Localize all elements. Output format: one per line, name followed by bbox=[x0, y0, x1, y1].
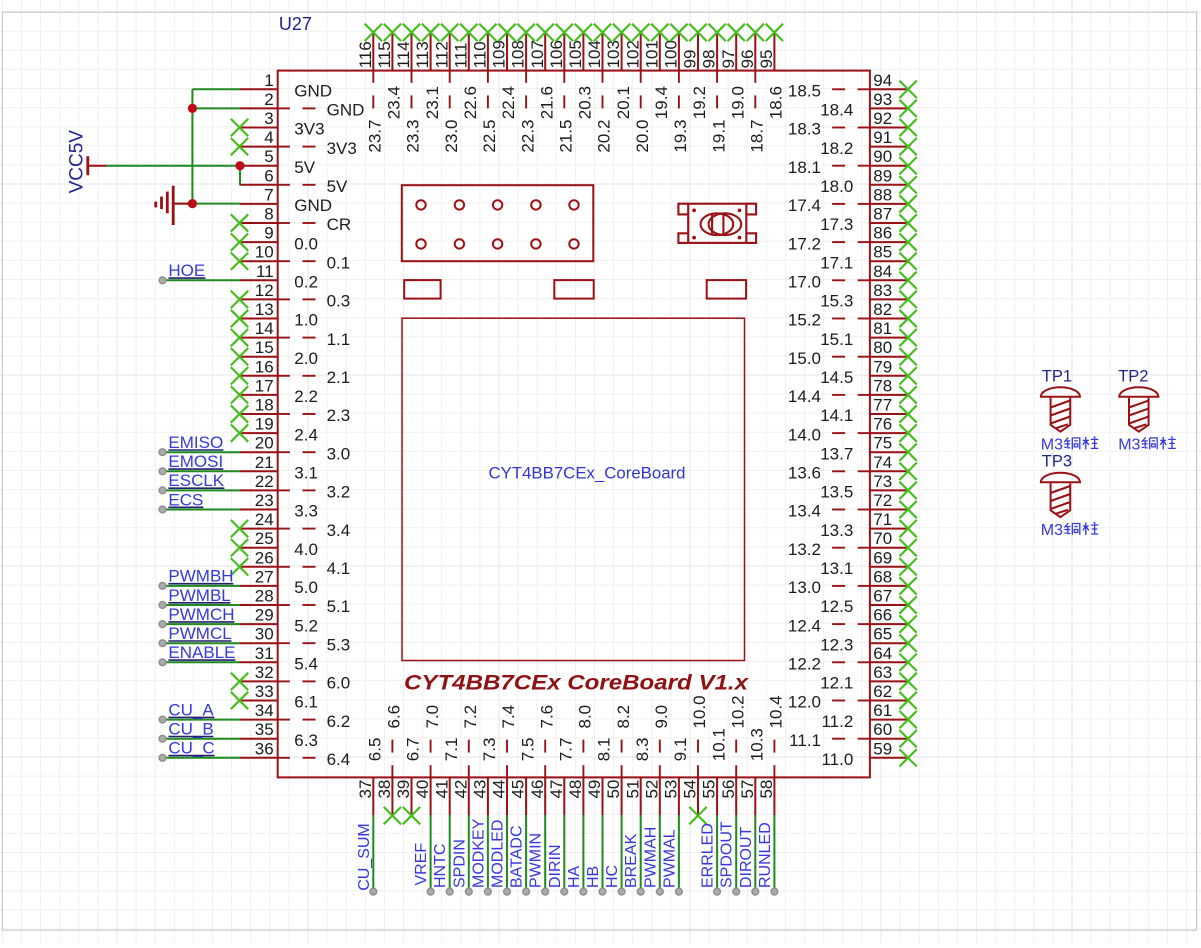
svg-text:MODKEY: MODKEY bbox=[470, 818, 487, 888]
svg-text:20.3: 20.3 bbox=[576, 86, 595, 119]
svg-text:2: 2 bbox=[264, 90, 273, 109]
svg-text:83: 83 bbox=[873, 281, 892, 300]
svg-text:22.4: 22.4 bbox=[499, 86, 518, 119]
svg-text:CU_SUM: CU_SUM bbox=[356, 823, 373, 891]
svg-text:13.4: 13.4 bbox=[788, 502, 821, 521]
svg-text:7.7: 7.7 bbox=[557, 738, 576, 762]
svg-text:43: 43 bbox=[471, 780, 490, 799]
svg-text:37: 37 bbox=[356, 780, 375, 799]
svg-text:13.0: 13.0 bbox=[788, 578, 821, 597]
svg-text:3V3: 3V3 bbox=[294, 120, 324, 139]
svg-text:89: 89 bbox=[873, 166, 892, 185]
svg-text:81: 81 bbox=[873, 319, 892, 338]
svg-text:48: 48 bbox=[566, 780, 585, 799]
svg-text:53: 53 bbox=[662, 780, 681, 799]
svg-text:17.1: 17.1 bbox=[820, 253, 853, 272]
svg-text:34: 34 bbox=[255, 701, 274, 720]
svg-text:23.1: 23.1 bbox=[423, 86, 442, 119]
svg-text:17.2: 17.2 bbox=[788, 234, 821, 253]
svg-text:18.0: 18.0 bbox=[820, 177, 853, 196]
svg-text:33: 33 bbox=[255, 682, 274, 701]
svg-text:72: 72 bbox=[873, 491, 892, 510]
svg-text:17: 17 bbox=[255, 376, 274, 395]
svg-text:61: 61 bbox=[873, 701, 892, 720]
svg-text:EMISO: EMISO bbox=[168, 433, 223, 452]
svg-text:ERRLED: ERRLED bbox=[700, 823, 717, 888]
svg-text:11.0: 11.0 bbox=[821, 750, 853, 769]
svg-text:13.6: 13.6 bbox=[788, 464, 821, 483]
svg-text:VCC5V: VCC5V bbox=[67, 130, 88, 194]
svg-text:9.1: 9.1 bbox=[671, 738, 690, 762]
svg-text:PWMCL: PWMCL bbox=[168, 624, 231, 643]
svg-text:76: 76 bbox=[873, 415, 892, 434]
svg-text:55: 55 bbox=[700, 780, 719, 799]
svg-text:95: 95 bbox=[757, 49, 776, 68]
svg-text:107: 107 bbox=[528, 40, 547, 68]
svg-text:CU_C: CU_C bbox=[168, 739, 214, 758]
svg-text:RUNLED: RUNLED bbox=[757, 822, 774, 888]
svg-text:13.2: 13.2 bbox=[788, 540, 821, 559]
svg-text:12.5: 12.5 bbox=[820, 597, 853, 616]
svg-text:47: 47 bbox=[547, 780, 566, 799]
svg-text:12.1: 12.1 bbox=[820, 674, 853, 693]
svg-text:93: 93 bbox=[873, 90, 892, 109]
svg-text:3.3: 3.3 bbox=[294, 502, 318, 521]
svg-text:12: 12 bbox=[255, 281, 274, 300]
svg-text:16: 16 bbox=[255, 357, 274, 376]
svg-text:75: 75 bbox=[873, 434, 892, 453]
svg-text:SPDIN: SPDIN bbox=[451, 839, 468, 888]
svg-text:1: 1 bbox=[264, 71, 273, 90]
svg-text:5V: 5V bbox=[294, 158, 315, 177]
svg-text:M3: M3 bbox=[1041, 522, 1063, 539]
svg-text:5.1: 5.1 bbox=[327, 597, 351, 616]
svg-text:51: 51 bbox=[623, 780, 642, 799]
svg-text:110: 110 bbox=[471, 41, 490, 68]
svg-text:PWMAL: PWMAL bbox=[661, 829, 678, 888]
svg-text:5V: 5V bbox=[327, 177, 348, 196]
svg-text:22.3: 22.3 bbox=[518, 120, 537, 153]
svg-text:69: 69 bbox=[873, 548, 892, 567]
svg-text:40: 40 bbox=[413, 780, 432, 799]
svg-text:CU_A: CU_A bbox=[168, 700, 214, 719]
svg-text:22.6: 22.6 bbox=[461, 86, 480, 119]
svg-text:105: 105 bbox=[566, 40, 585, 68]
svg-text:4.0: 4.0 bbox=[294, 540, 318, 559]
svg-text:PWMBL: PWMBL bbox=[168, 586, 230, 605]
svg-text:31: 31 bbox=[255, 644, 274, 663]
svg-text:98: 98 bbox=[700, 49, 719, 68]
svg-text:78: 78 bbox=[873, 376, 892, 395]
svg-text:19: 19 bbox=[255, 415, 274, 434]
svg-text:49: 49 bbox=[585, 780, 604, 799]
svg-text:23: 23 bbox=[255, 491, 274, 510]
svg-text:6.1: 6.1 bbox=[294, 693, 318, 712]
svg-text:2.4: 2.4 bbox=[294, 425, 318, 444]
svg-text:39: 39 bbox=[394, 780, 413, 799]
svg-text:PWMIN: PWMIN bbox=[528, 833, 545, 888]
svg-text:M3: M3 bbox=[1118, 436, 1140, 453]
svg-text:10.3: 10.3 bbox=[748, 728, 767, 761]
svg-text:64: 64 bbox=[873, 644, 892, 663]
svg-text:102: 102 bbox=[623, 40, 642, 68]
svg-text:66: 66 bbox=[873, 606, 892, 625]
svg-text:GND: GND bbox=[294, 196, 332, 215]
svg-text:DIRIN: DIRIN bbox=[547, 844, 564, 888]
svg-text:17.3: 17.3 bbox=[820, 215, 853, 234]
svg-text:22.5: 22.5 bbox=[480, 120, 499, 153]
svg-text:97: 97 bbox=[719, 49, 738, 68]
svg-text:91: 91 bbox=[873, 128, 892, 147]
svg-text:CYT4BB7CEx CoreBoard V1.x: CYT4BB7CEx CoreBoard V1.x bbox=[404, 671, 750, 694]
svg-text:13.3: 13.3 bbox=[820, 521, 853, 540]
svg-text:3.4: 3.4 bbox=[327, 521, 351, 540]
svg-text:13.5: 13.5 bbox=[820, 483, 853, 502]
svg-text:109: 109 bbox=[490, 40, 509, 68]
svg-text:88: 88 bbox=[873, 185, 892, 204]
svg-text:23.4: 23.4 bbox=[385, 86, 404, 119]
svg-text:112: 112 bbox=[432, 41, 451, 68]
svg-text:18.7: 18.7 bbox=[748, 120, 767, 153]
svg-text:36: 36 bbox=[255, 739, 274, 758]
svg-text:10.0: 10.0 bbox=[690, 695, 709, 728]
svg-text:58: 58 bbox=[757, 780, 776, 799]
svg-text:24: 24 bbox=[255, 510, 274, 529]
svg-text:19.0: 19.0 bbox=[728, 86, 747, 119]
svg-text:67: 67 bbox=[873, 587, 892, 606]
svg-text:6.2: 6.2 bbox=[327, 712, 351, 731]
svg-text:12.3: 12.3 bbox=[820, 635, 853, 654]
svg-text:14.5: 14.5 bbox=[820, 368, 853, 387]
svg-text:7.0: 7.0 bbox=[423, 705, 442, 729]
svg-text:26: 26 bbox=[255, 548, 274, 567]
svg-text:3V3: 3V3 bbox=[327, 139, 357, 158]
svg-text:7: 7 bbox=[264, 185, 273, 204]
svg-text:2.1: 2.1 bbox=[327, 368, 351, 387]
svg-text:20: 20 bbox=[255, 434, 274, 453]
svg-text:111: 111 bbox=[451, 43, 470, 69]
svg-text:8.0: 8.0 bbox=[576, 705, 595, 729]
svg-text:13: 13 bbox=[255, 300, 274, 319]
svg-text:10.4: 10.4 bbox=[767, 695, 786, 728]
svg-text:54: 54 bbox=[681, 780, 700, 799]
svg-text:29: 29 bbox=[255, 606, 274, 625]
svg-text:3.2: 3.2 bbox=[327, 483, 351, 502]
svg-text:ESCLK: ESCLK bbox=[168, 471, 224, 490]
svg-text:6.7: 6.7 bbox=[404, 738, 423, 762]
svg-text:114: 114 bbox=[394, 41, 413, 68]
svg-text:HNTC: HNTC bbox=[432, 844, 449, 888]
svg-text:32: 32 bbox=[255, 663, 274, 682]
svg-text:18.5: 18.5 bbox=[788, 82, 821, 101]
svg-text:9: 9 bbox=[264, 224, 273, 243]
svg-text:12.0: 12.0 bbox=[788, 693, 821, 712]
svg-text:BREAK: BREAK bbox=[623, 833, 640, 888]
svg-text:63: 63 bbox=[873, 663, 892, 682]
svg-text:18.2: 18.2 bbox=[820, 139, 853, 158]
svg-text:6.3: 6.3 bbox=[294, 731, 318, 750]
svg-text:18.4: 18.4 bbox=[820, 101, 853, 120]
svg-text:18.1: 18.1 bbox=[788, 158, 821, 177]
svg-text:6.5: 6.5 bbox=[366, 738, 385, 762]
svg-text:115: 115 bbox=[375, 41, 394, 68]
svg-text:8.1: 8.1 bbox=[595, 738, 614, 762]
svg-text:68: 68 bbox=[873, 567, 892, 586]
svg-text:113: 113 bbox=[413, 41, 432, 68]
svg-text:87: 87 bbox=[873, 205, 892, 224]
svg-text:11.1: 11.1 bbox=[789, 731, 821, 750]
svg-text:0.3: 0.3 bbox=[327, 292, 351, 311]
svg-text:90: 90 bbox=[873, 147, 892, 166]
svg-text:CR: CR bbox=[327, 215, 352, 234]
svg-text:ECS: ECS bbox=[168, 490, 203, 509]
svg-text:10.1: 10.1 bbox=[709, 728, 728, 761]
svg-text:9.0: 9.0 bbox=[652, 705, 671, 729]
svg-text:6: 6 bbox=[264, 166, 273, 185]
svg-text:104: 104 bbox=[585, 40, 604, 68]
svg-text:7.6: 7.6 bbox=[537, 705, 556, 729]
svg-text:2.0: 2.0 bbox=[294, 349, 318, 368]
svg-text:21.6: 21.6 bbox=[537, 86, 556, 119]
svg-text:101: 101 bbox=[642, 40, 661, 68]
svg-text:74: 74 bbox=[873, 453, 892, 472]
svg-text:3.0: 3.0 bbox=[327, 444, 351, 463]
svg-text:15: 15 bbox=[255, 338, 274, 357]
svg-text:96: 96 bbox=[738, 49, 757, 68]
svg-text:19.1: 19.1 bbox=[709, 120, 728, 153]
svg-text:20.1: 20.1 bbox=[614, 86, 633, 119]
svg-text:7.3: 7.3 bbox=[480, 738, 499, 762]
svg-text:10: 10 bbox=[255, 243, 274, 262]
svg-text:18.6: 18.6 bbox=[767, 86, 786, 119]
svg-text:PWMBH: PWMBH bbox=[168, 567, 233, 586]
svg-text:2.3: 2.3 bbox=[327, 406, 351, 425]
svg-text:ENABLE: ENABLE bbox=[168, 643, 235, 662]
svg-text:13.7: 13.7 bbox=[820, 444, 853, 463]
svg-text:50: 50 bbox=[604, 780, 623, 799]
svg-text:35: 35 bbox=[255, 720, 274, 739]
svg-text:19.4: 19.4 bbox=[652, 86, 671, 119]
svg-text:15.3: 15.3 bbox=[820, 292, 853, 311]
svg-text:11.2: 11.2 bbox=[821, 712, 853, 731]
svg-text:TP1: TP1 bbox=[1042, 367, 1072, 385]
svg-text:52: 52 bbox=[642, 780, 661, 799]
svg-text:86: 86 bbox=[873, 224, 892, 243]
svg-text:65: 65 bbox=[873, 625, 892, 644]
svg-text:17.4: 17.4 bbox=[788, 196, 821, 215]
svg-text:57: 57 bbox=[738, 780, 757, 799]
svg-text:71: 71 bbox=[873, 510, 892, 529]
svg-text:4: 4 bbox=[264, 128, 273, 147]
svg-text:41: 41 bbox=[432, 780, 451, 799]
svg-text:8.3: 8.3 bbox=[633, 738, 652, 762]
svg-text:18.3: 18.3 bbox=[788, 120, 821, 139]
svg-text:U27: U27 bbox=[279, 14, 312, 34]
svg-text:5.2: 5.2 bbox=[294, 616, 318, 635]
svg-text:1.1: 1.1 bbox=[327, 330, 351, 349]
svg-text:VREF: VREF bbox=[413, 843, 430, 886]
svg-text:14.1: 14.1 bbox=[820, 406, 853, 425]
svg-text:14.0: 14.0 bbox=[788, 425, 821, 444]
svg-text:77: 77 bbox=[873, 396, 892, 415]
svg-text:GND: GND bbox=[327, 101, 365, 120]
svg-text:100: 100 bbox=[662, 40, 681, 68]
svg-text:10.2: 10.2 bbox=[728, 695, 747, 728]
svg-text:79: 79 bbox=[873, 357, 892, 376]
svg-text:M3: M3 bbox=[1041, 436, 1063, 453]
svg-text:23.7: 23.7 bbox=[366, 120, 385, 153]
svg-text:42: 42 bbox=[451, 780, 470, 799]
svg-text:18: 18 bbox=[255, 396, 274, 415]
svg-text:3: 3 bbox=[264, 109, 273, 128]
svg-text:12.4: 12.4 bbox=[788, 616, 821, 635]
svg-text:7.5: 7.5 bbox=[518, 738, 537, 762]
svg-text:5: 5 bbox=[264, 147, 273, 166]
svg-text:22: 22 bbox=[255, 472, 274, 491]
svg-text:23.0: 23.0 bbox=[442, 120, 461, 153]
svg-text:BATADC: BATADC bbox=[509, 825, 526, 888]
svg-text:82: 82 bbox=[873, 300, 892, 319]
svg-text:7.2: 7.2 bbox=[461, 705, 480, 729]
svg-text:27: 27 bbox=[255, 567, 274, 586]
svg-text:44: 44 bbox=[490, 780, 509, 799]
svg-text:PWMAH: PWMAH bbox=[642, 827, 659, 888]
svg-text:19.3: 19.3 bbox=[671, 120, 690, 153]
svg-text:6.6: 6.6 bbox=[385, 705, 404, 729]
svg-text:20.0: 20.0 bbox=[633, 120, 652, 153]
svg-text:116: 116 bbox=[356, 41, 375, 68]
svg-text:TP2: TP2 bbox=[1118, 367, 1148, 385]
svg-text:59: 59 bbox=[873, 739, 892, 758]
svg-text:30: 30 bbox=[255, 625, 274, 644]
svg-text:8: 8 bbox=[264, 205, 273, 224]
svg-text:103: 103 bbox=[604, 40, 623, 68]
svg-text:25: 25 bbox=[255, 529, 274, 548]
svg-text:6.0: 6.0 bbox=[327, 674, 351, 693]
svg-text:5.3: 5.3 bbox=[327, 635, 351, 654]
svg-text:5.0: 5.0 bbox=[294, 578, 318, 597]
svg-text:0.2: 0.2 bbox=[294, 273, 318, 292]
svg-text:23.3: 23.3 bbox=[404, 120, 423, 153]
svg-text:4.1: 4.1 bbox=[327, 559, 351, 578]
svg-text:92: 92 bbox=[873, 109, 892, 128]
svg-text:19.2: 19.2 bbox=[690, 86, 709, 119]
svg-text:15.0: 15.0 bbox=[788, 349, 821, 368]
svg-text:45: 45 bbox=[509, 780, 528, 799]
svg-text:HC: HC bbox=[604, 865, 621, 888]
svg-text:15.1: 15.1 bbox=[820, 330, 853, 349]
svg-text:CU_B: CU_B bbox=[168, 720, 213, 739]
svg-text:80: 80 bbox=[873, 338, 892, 357]
svg-text:EMOSI: EMOSI bbox=[168, 452, 223, 471]
svg-text:56: 56 bbox=[719, 780, 738, 799]
svg-text:21.5: 21.5 bbox=[557, 120, 576, 153]
svg-text:TP3: TP3 bbox=[1042, 453, 1072, 471]
svg-text:85: 85 bbox=[873, 243, 892, 262]
svg-text:2.2: 2.2 bbox=[294, 387, 318, 406]
svg-text:HA: HA bbox=[566, 865, 583, 888]
svg-text:46: 46 bbox=[528, 780, 547, 799]
svg-text:28: 28 bbox=[255, 587, 274, 606]
svg-text:7.1: 7.1 bbox=[442, 738, 461, 762]
svg-text:94: 94 bbox=[873, 71, 892, 90]
svg-text:38: 38 bbox=[375, 780, 394, 799]
svg-text:70: 70 bbox=[873, 529, 892, 548]
svg-text:8.2: 8.2 bbox=[614, 705, 633, 729]
svg-text:99: 99 bbox=[681, 49, 700, 68]
svg-text:84: 84 bbox=[873, 262, 892, 281]
svg-text:HOE: HOE bbox=[168, 261, 205, 280]
svg-text:CYT4BB7CEx_CoreBoard: CYT4BB7CEx_CoreBoard bbox=[489, 464, 686, 483]
svg-text:MODLED: MODLED bbox=[490, 820, 507, 888]
svg-text:0.0: 0.0 bbox=[294, 234, 318, 253]
svg-text:12.2: 12.2 bbox=[788, 655, 821, 674]
svg-text:GND: GND bbox=[294, 82, 332, 101]
svg-text:HB: HB bbox=[585, 866, 602, 888]
svg-text:0.1: 0.1 bbox=[327, 253, 351, 272]
svg-text:108: 108 bbox=[509, 40, 528, 68]
svg-text:14.4: 14.4 bbox=[788, 387, 821, 406]
svg-text:SPDOUT: SPDOUT bbox=[719, 821, 736, 888]
svg-text:15.2: 15.2 bbox=[788, 311, 821, 330]
svg-text:13.1: 13.1 bbox=[820, 559, 853, 578]
svg-text:3.1: 3.1 bbox=[294, 464, 318, 483]
svg-text:6.4: 6.4 bbox=[327, 750, 351, 769]
svg-text:DIROUT: DIROUT bbox=[738, 826, 755, 888]
svg-text:20.2: 20.2 bbox=[595, 120, 614, 153]
svg-text:11: 11 bbox=[256, 262, 274, 281]
svg-text:1.0: 1.0 bbox=[294, 311, 318, 330]
svg-text:73: 73 bbox=[873, 472, 892, 491]
svg-text:17.0: 17.0 bbox=[788, 273, 821, 292]
svg-text:5.4: 5.4 bbox=[294, 655, 318, 674]
svg-text:14: 14 bbox=[255, 319, 274, 338]
svg-text:7.4: 7.4 bbox=[499, 705, 518, 729]
svg-text:106: 106 bbox=[547, 40, 566, 68]
svg-text:PWMCH: PWMCH bbox=[168, 605, 234, 624]
svg-text:21: 21 bbox=[255, 453, 274, 472]
svg-text:62: 62 bbox=[873, 682, 892, 701]
svg-text:60: 60 bbox=[873, 720, 892, 739]
